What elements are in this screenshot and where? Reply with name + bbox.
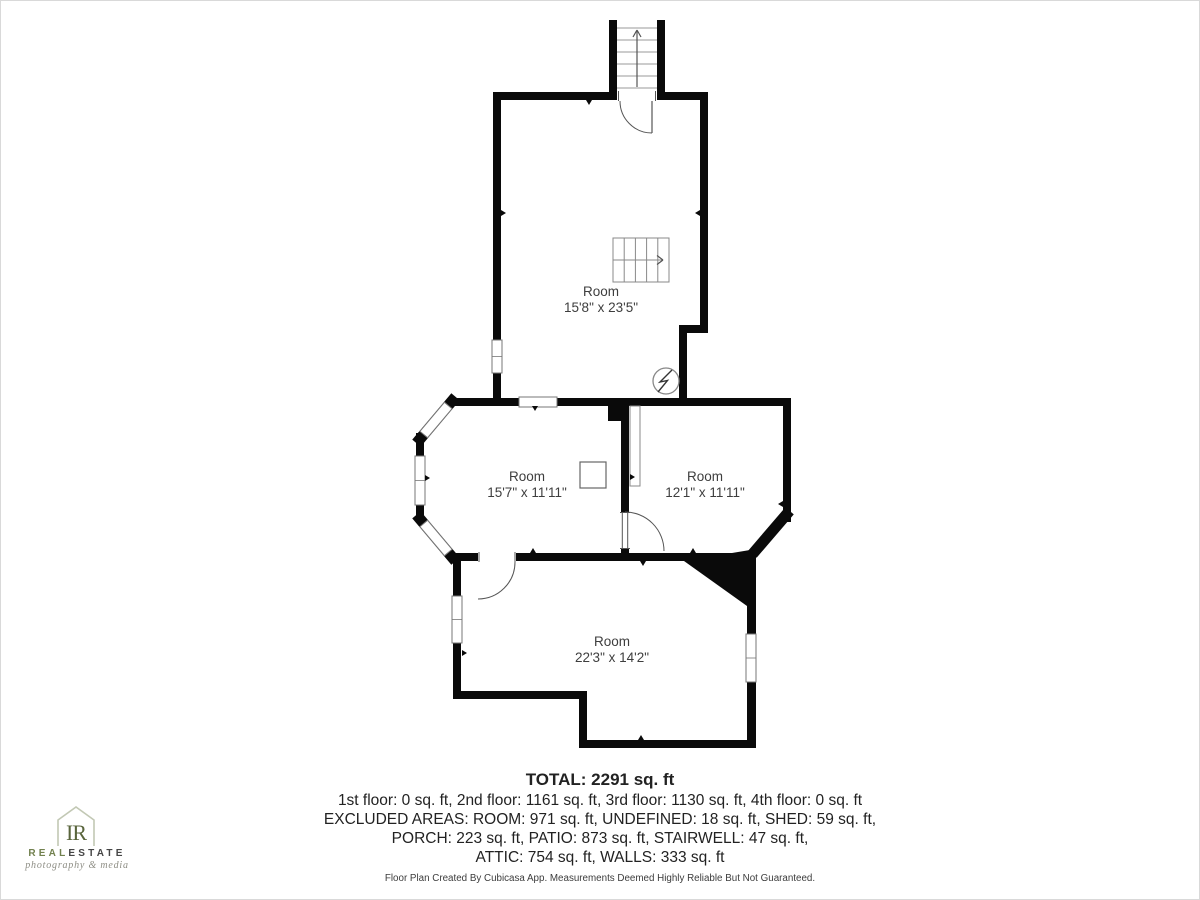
stair-up-arrow-icon	[633, 30, 641, 87]
page-border	[1, 1, 1200, 900]
door-top	[617, 91, 657, 133]
logo-brand-green: REAL	[28, 848, 68, 859]
electrical-panel-icon	[653, 368, 679, 394]
floor-areas-text: 1st floor: 0 sq. ft, 2nd floor: 1161 sq.…	[338, 792, 863, 809]
room-dims: 15'8" x 23'5"	[564, 300, 638, 315]
excluded-areas-text-2: PORCH: 223 sq. ft, PATIO: 873 sq. ft, ST…	[392, 830, 809, 847]
total-area-text: TOTAL: 2291 sq. ft	[526, 770, 675, 789]
room-dims: 22'3" x 14'2"	[575, 650, 649, 665]
door-arc-icon	[625, 512, 664, 551]
wall-opening	[519, 397, 557, 407]
bay-window-icon	[420, 402, 452, 438]
room-dims: 12'1" x 11'11"	[665, 485, 745, 500]
closet-strip	[630, 406, 640, 486]
room-label: Room	[687, 469, 723, 484]
logo-brand-dark: ESTATE	[68, 848, 125, 859]
windows	[415, 340, 756, 682]
room-label: Room	[594, 634, 630, 649]
fixture-square	[580, 462, 606, 488]
room-dims: 15'7" x 11'11"	[487, 485, 567, 500]
room-labels: Room 15'8" x 23'5" Room 15'7" x 11'11" R…	[487, 284, 745, 665]
stairwell-icon	[617, 28, 657, 88]
excluded-areas-text-1: EXCLUDED AREAS: ROOM: 971 sq. ft, UNDEFI…	[324, 811, 876, 828]
company-logo: IR REALESTATE photography & media	[24, 807, 129, 871]
logo-brand-text: REALESTATE	[28, 848, 125, 859]
floor-plan-canvas: Room 15'8" x 23'5" Room 15'7" x 11'11" R…	[0, 0, 1200, 900]
staircase-icon	[613, 238, 669, 282]
bay-window-icon	[420, 520, 452, 556]
disclaimer-text: Floor Plan Created By Cubicasa App. Meas…	[385, 873, 815, 884]
door-arc-icon	[478, 562, 515, 599]
room-label: Room	[509, 469, 545, 484]
door-arc-icon	[620, 101, 652, 133]
door-bottom-room	[478, 552, 516, 599]
floor-plan-page: Room 15'8" x 23'5" Room 15'7" x 11'11" R…	[0, 0, 1200, 900]
logo-tagline: photography & media	[24, 860, 129, 871]
room-label: Room	[583, 284, 619, 299]
summary-block: TOTAL: 2291 sq. ft 1st floor: 0 sq. ft, …	[324, 770, 876, 866]
logo-monogram: IR	[66, 820, 87, 845]
door-divider	[620, 512, 664, 551]
excluded-areas-text-3: ATTIC: 754 sq. ft, WALLS: 333 sq. ft	[476, 849, 726, 866]
